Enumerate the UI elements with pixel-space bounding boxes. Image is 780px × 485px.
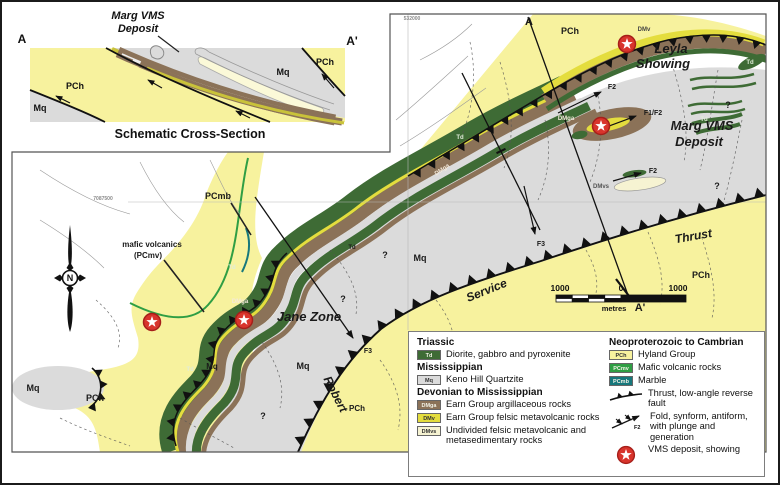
legend-swatch-DMv: DMv — [417, 413, 441, 423]
legend-section-title: Neoproterozoic to Cambrian — [609, 337, 761, 348]
map-unit-label: Mq — [27, 383, 40, 393]
map-unit-label: PCh — [349, 404, 365, 413]
map-unit-label: ? — [714, 181, 720, 191]
cross-section-inset: Marg VMS Deposit A A' PCh Mq Mq PCh Sche… — [18, 10, 358, 141]
xs-pch-left-label: PCh — [66, 81, 84, 91]
svg-text:F2: F2 — [634, 425, 640, 431]
map-unit-label: F2 — [649, 168, 657, 175]
legend-swatch-DMvs: DMvs — [417, 426, 441, 436]
star-symbol-icon — [609, 445, 643, 465]
legend-section-title: Mississippian — [417, 362, 601, 373]
map-unit-label: ? — [260, 411, 266, 421]
legend-symbol-label: Thrust, low-angle reverse fault — [648, 388, 761, 409]
legend: TriassicTdDiorite, gabbro and pyroxenite… — [408, 331, 765, 477]
svg-text:1000: 1000 — [551, 283, 570, 293]
legend-item-label: Hyland Group — [638, 349, 695, 359]
legend-swatch-PCmb: PCmb — [609, 376, 633, 386]
vms-star-symbol — [593, 118, 610, 135]
vms-star-symbol — [619, 36, 636, 53]
map-unit-label: PCh — [692, 270, 710, 280]
legend-item: PChHyland Group — [609, 349, 761, 360]
legend-swatch-DMga: DMga — [417, 400, 441, 410]
map-unit-label: Td — [348, 245, 356, 251]
vms-star-symbol — [144, 314, 161, 331]
vms-star-symbol — [236, 312, 253, 329]
legend-section-title: Devonian to Mississippian — [417, 387, 601, 398]
legend-item: PCmvMafic volcanic rocks — [609, 362, 761, 373]
legend-item-label: Diorite, gabbro and pyroxenite — [446, 349, 571, 359]
legend-item-label: Mafic volcanic rocks — [638, 362, 721, 372]
map-feature-label: (PCmv) — [134, 251, 162, 260]
legend-item-label: Undivided felsic metavolcanic and metase… — [446, 425, 601, 446]
map-unit-label: PCh — [561, 26, 579, 36]
legend-item-label: Keno Hill Quartzite — [446, 374, 524, 384]
legend-item-label: Earn Group argillaceous rocks — [446, 399, 571, 409]
legend-column-1: TriassicTdDiorite, gabbro and pyroxenite… — [417, 335, 601, 448]
map-unit-label: F1/F2 — [644, 110, 662, 117]
map-unit-label: Mq — [206, 362, 218, 371]
map-unit-label: Td — [186, 367, 194, 373]
legend-item: MqKeno Hill Quartzite — [417, 374, 601, 385]
map-unit-label: PCmb — [205, 191, 232, 201]
legend-symbol-star: VMS deposit, showing — [609, 444, 761, 465]
north-letter: N — [67, 273, 74, 283]
map-unit-label: Td — [228, 265, 236, 271]
xs-fold-nose — [150, 46, 163, 59]
xs-deposit-label-1: Marg VMS — [111, 10, 165, 22]
map-feature-label: Showing — [636, 56, 690, 71]
map-unit-label: F2 — [608, 84, 616, 91]
map-unit-label: Mq — [297, 361, 310, 371]
legend-item: DMvsUndivided felsic metavolcanic and me… — [417, 425, 601, 446]
map-unit-label: ? — [382, 250, 388, 260]
map-unit-label: PCh — [86, 393, 104, 403]
map-unit-label: DMga — [558, 116, 575, 122]
legend-column-2: Neoproterozoic to CambrianPChHyland Grou… — [609, 335, 761, 467]
map-unit-label: ? — [340, 294, 346, 304]
map-unit-label: F3 — [537, 241, 545, 248]
legend-item-label: Earn Group felsic metavolcanic rocks — [446, 412, 599, 422]
map-feature-label: Marg VMS — [671, 118, 734, 133]
map-unit-label: Td — [456, 135, 464, 141]
legend-item-label: Marble — [638, 375, 666, 385]
map-unit-label: F3 — [364, 348, 372, 355]
map-unit-label: DMv — [638, 27, 651, 33]
map-unit-label: 532000 — [404, 16, 421, 22]
legend-item: DMgaEarn Group argillaceous rocks — [417, 399, 601, 410]
map-feature-label: Deposit — [675, 134, 723, 149]
xs-a-label: A — [18, 32, 27, 46]
legend-swatch-PCh: PCh — [609, 350, 633, 360]
map-feature-label: Leyla — [654, 41, 687, 56]
legend-item: TdDiorite, gabbro and pyroxenite — [417, 349, 601, 360]
legend-item: DMvEarn Group felsic metavolcanic rocks — [417, 412, 601, 423]
legend-symbol-thrust: Thrust, low-angle reverse fault — [609, 388, 761, 409]
thrust-symbol-icon — [609, 389, 643, 402]
xs-mq-right-label: Mq — [277, 67, 290, 77]
map-unit-label: Mq — [414, 253, 427, 263]
svg-text:metres: metres — [602, 304, 627, 313]
xs-mq-left-label: Mq — [34, 103, 47, 113]
svg-text:0: 0 — [619, 283, 624, 293]
legend-symbol-label: Fold, synform, antiform, with plunge and… — [650, 411, 761, 442]
map-feature-label: A — [525, 16, 533, 28]
map-unit-label: DMga — [232, 299, 249, 305]
legend-symbol-fold: F2Fold, synform, antiform, with plunge a… — [609, 411, 761, 442]
legend-swatch-Td: Td — [417, 350, 441, 360]
map-unit-label: ? — [725, 100, 731, 110]
legend-item: PCmbMarble — [609, 375, 761, 386]
legend-section-title: Triassic — [417, 337, 601, 348]
xs-deposit-label-2: Deposit — [118, 23, 160, 35]
map-feature-label: mafic volcanics — [122, 240, 182, 249]
map-unit-label: DMvs — [593, 184, 610, 190]
legend-symbol-label: VMS deposit, showing — [648, 444, 740, 454]
xs-title: Schematic Cross-Section — [115, 127, 266, 141]
map-unit-label: Td — [746, 60, 754, 66]
xs-pch-right-label: PCh — [316, 57, 334, 67]
svg-text:1000: 1000 — [669, 283, 688, 293]
map-unit-label: 7087500 — [93, 196, 113, 202]
xs-a-prime-label: A' — [346, 34, 358, 48]
map-feature-label: A' — [635, 302, 646, 314]
legend-swatch-PCmv: PCmv — [609, 363, 633, 373]
fold-symbol-icon: F2 — [609, 412, 645, 431]
legend-swatch-Mq: Mq — [417, 375, 441, 385]
map-feature-label: Jane Zone — [277, 309, 341, 324]
